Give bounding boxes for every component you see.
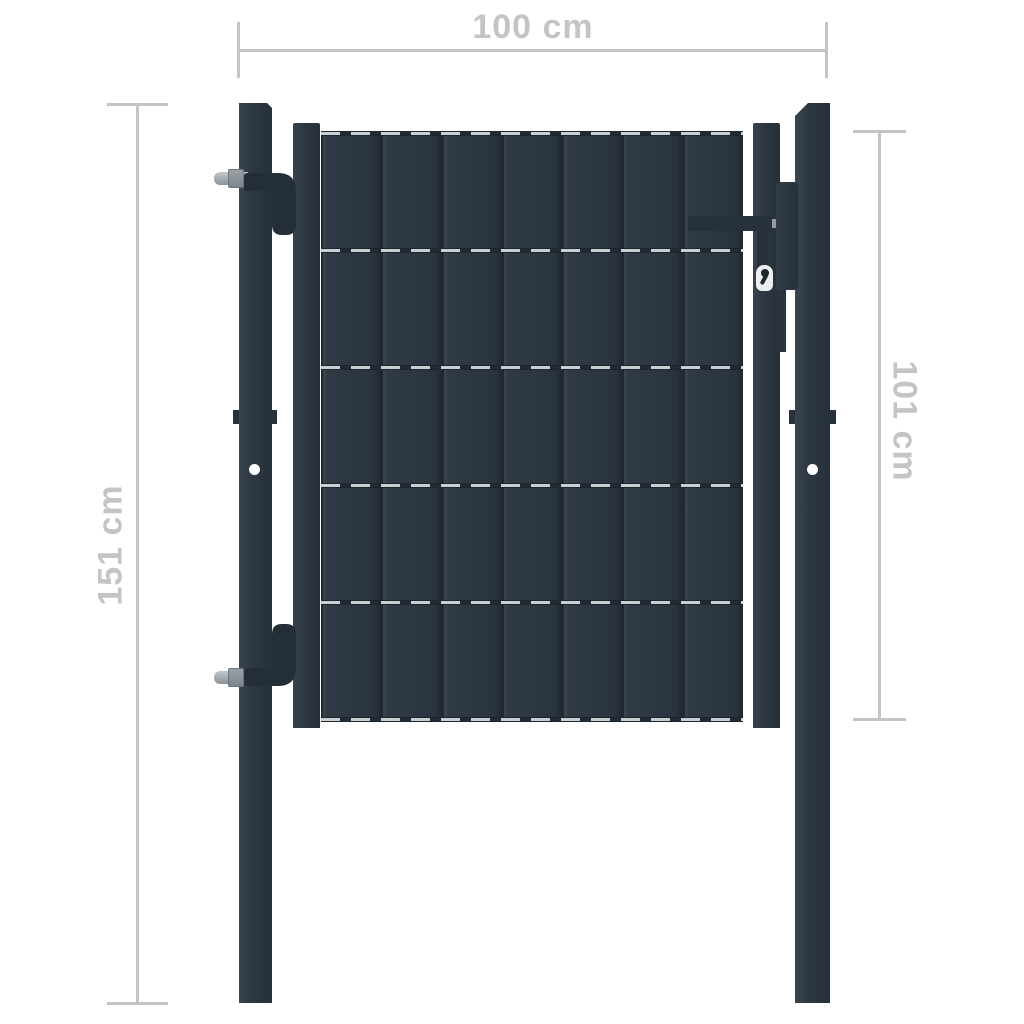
gate-slat (321, 131, 381, 722)
gate-rail-wire (321, 600, 743, 605)
key-icon (761, 269, 769, 277)
gate-slat (381, 131, 441, 722)
gate-rail-wire (321, 717, 743, 722)
gate-rail-wire (321, 365, 743, 370)
gate-slats (321, 131, 743, 722)
bottom-hinge-bracket-icon (244, 620, 300, 690)
right-post-hole (807, 464, 818, 475)
keyhole-icon (756, 265, 773, 291)
width-dimension-line (238, 49, 828, 52)
fence-gate-dimension-diagram: 100 cm 151 cm 101 cm (0, 0, 1024, 1024)
left-post-tab-left (233, 410, 239, 424)
gate-slat (622, 131, 682, 722)
width-dimension-tick-right (825, 22, 828, 78)
width-dimension-label: 100 cm (238, 8, 828, 47)
lock-plate-lower-strip (777, 290, 786, 352)
left-post-hole (249, 464, 260, 475)
bottom-hinge-nut (228, 668, 244, 687)
lock-plate (776, 182, 798, 290)
right-post-tab-right (830, 410, 836, 424)
gate-rail-wire (321, 483, 743, 488)
gate-slat (442, 131, 502, 722)
post-height-dimension-line (136, 104, 139, 1005)
gate-height-dimension-label: 101 cm (885, 360, 924, 481)
gate-rail-wire (321, 248, 743, 253)
gate-rail-wire (321, 131, 743, 136)
top-hinge-bracket-icon (244, 169, 300, 239)
gate-slat-panel (321, 131, 743, 722)
gate-height-dimension-tick-top (853, 130, 906, 133)
top-hinge-nut (228, 169, 244, 188)
gate-height-dimension-line (878, 131, 881, 721)
post-height-dimension-tick-bottom (107, 1002, 168, 1005)
gate-slat (562, 131, 622, 722)
gate-slat (502, 131, 562, 722)
right-post (795, 103, 830, 1003)
post-height-dimension-label: 151 cm (92, 484, 131, 605)
right-post-tab-left (789, 410, 795, 424)
left-post-tab-right (271, 410, 277, 424)
post-height-dimension-tick-top (107, 103, 168, 106)
gate-height-dimension-tick-bottom (853, 718, 906, 721)
width-dimension-tick-left (237, 22, 240, 78)
